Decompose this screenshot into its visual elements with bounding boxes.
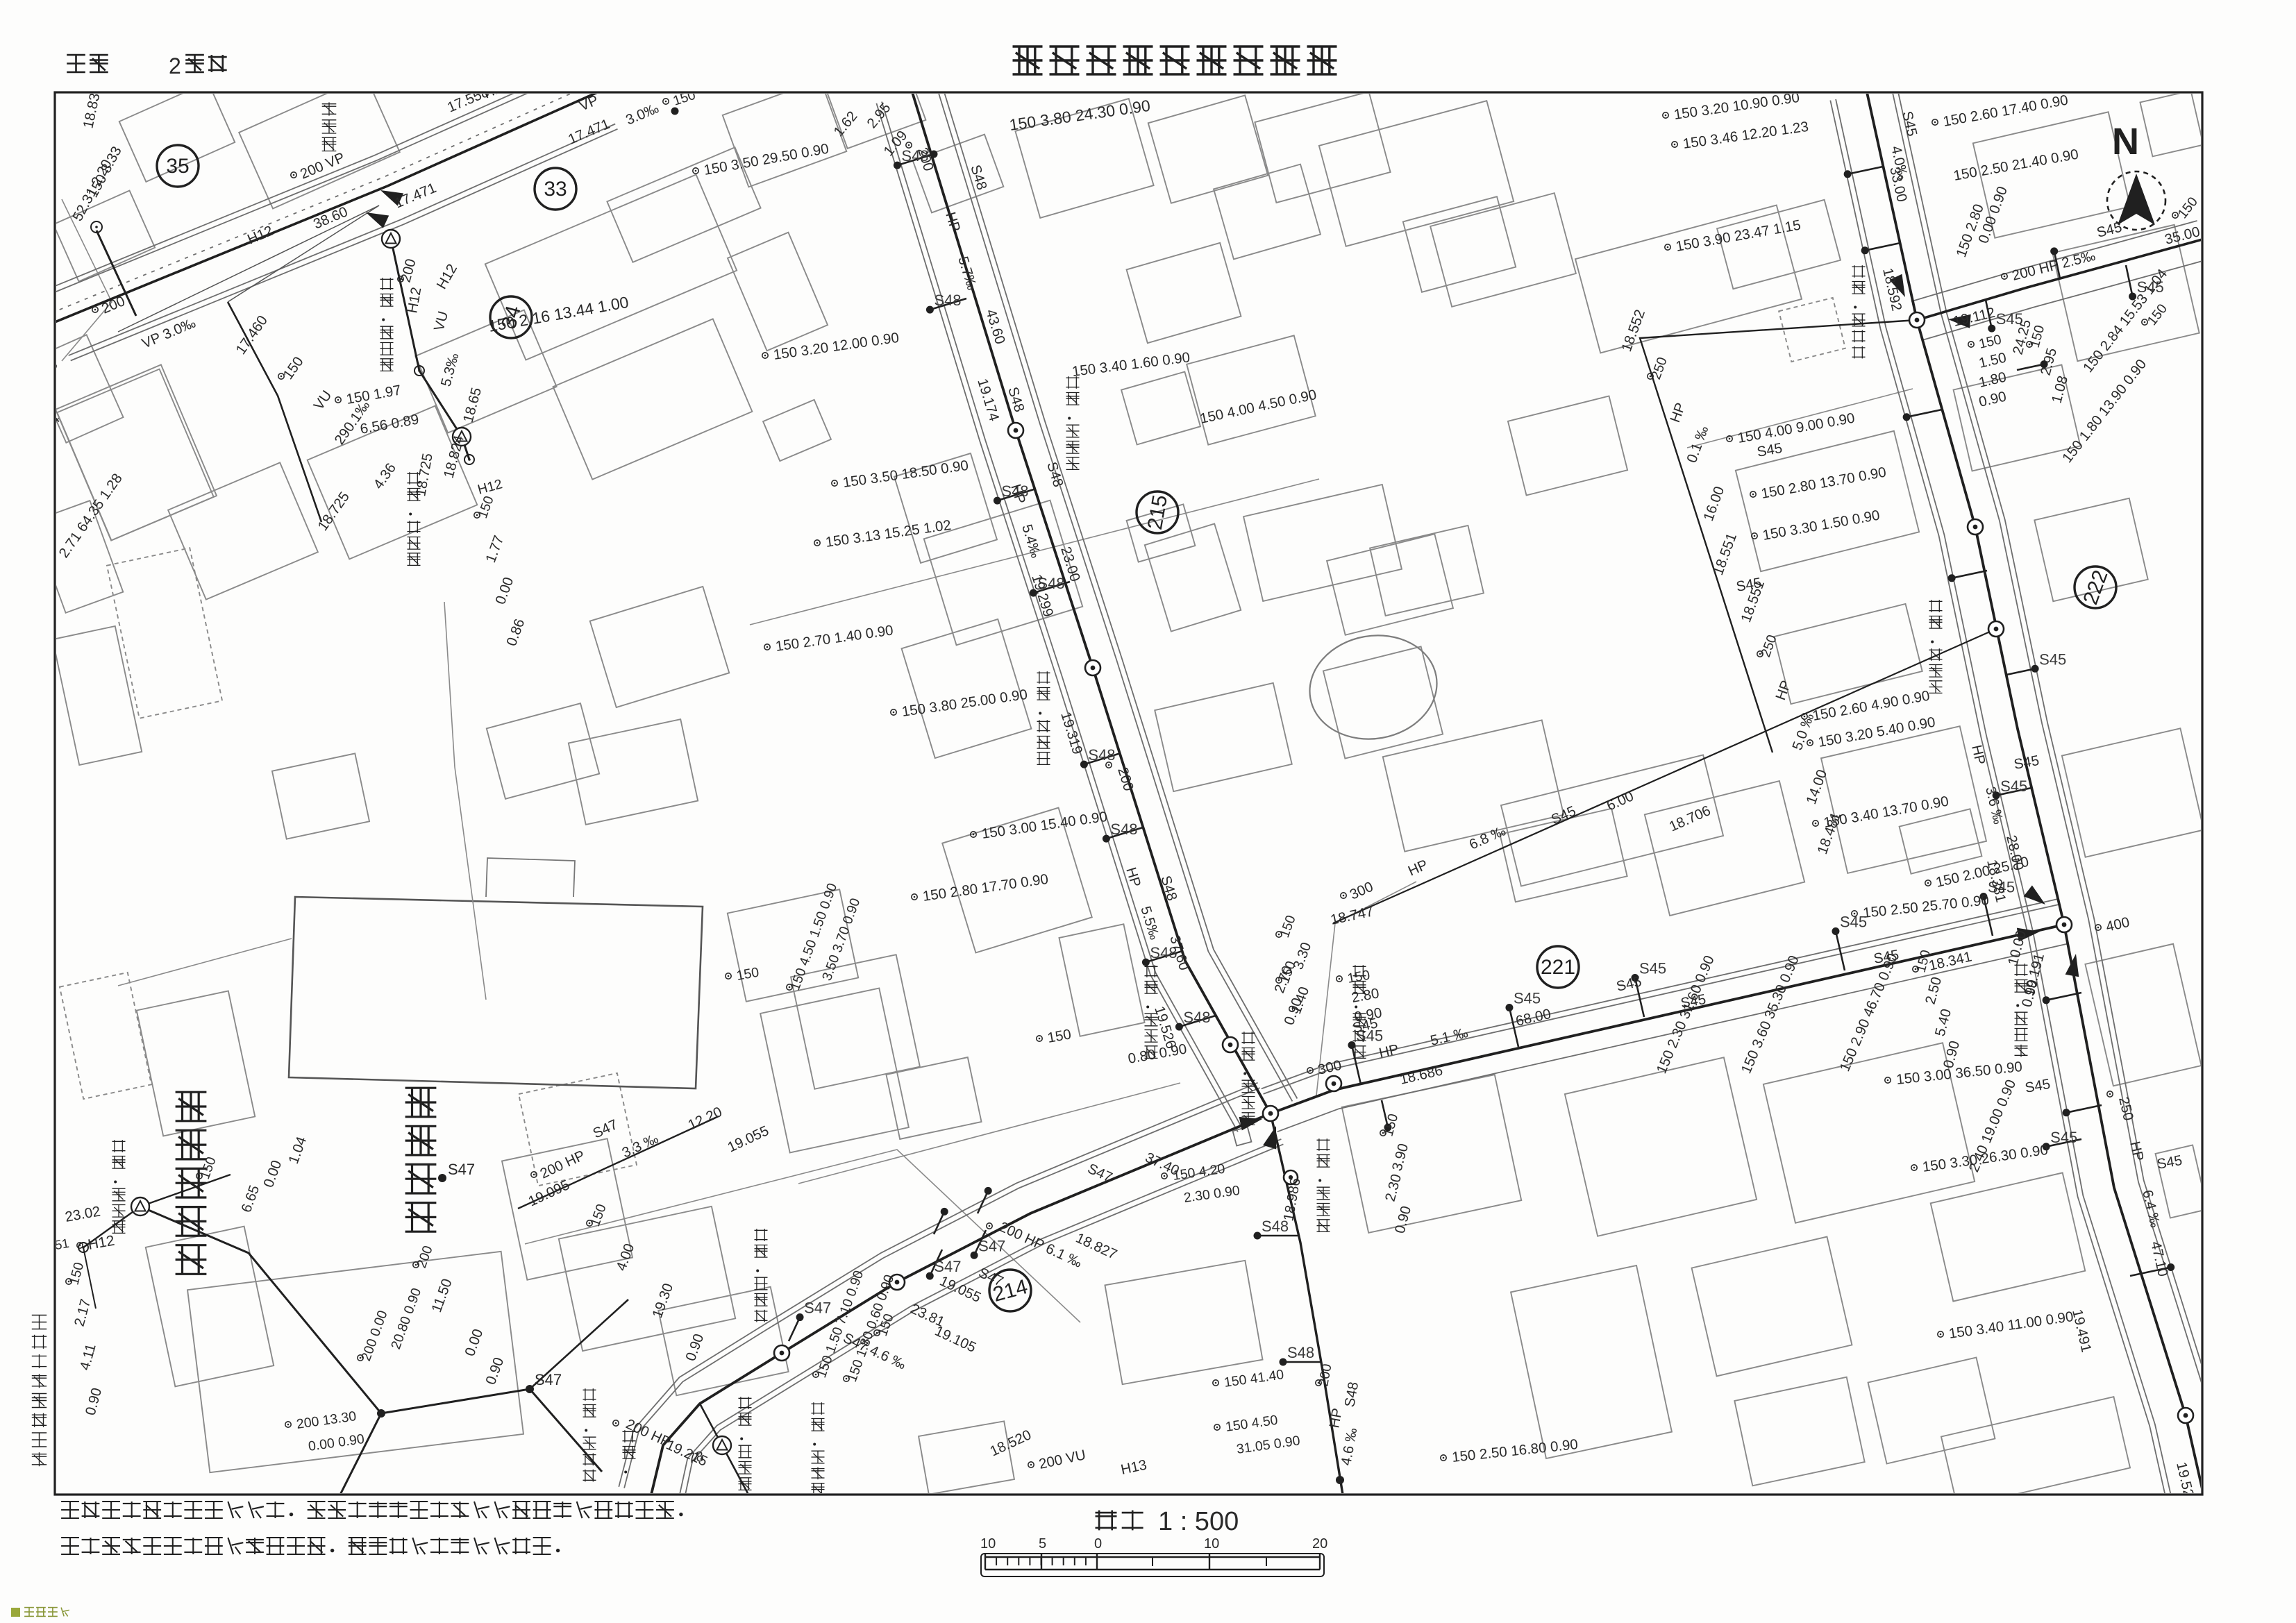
svg-text:N: N: [2112, 121, 2139, 162]
svg-text:0: 0: [1094, 1536, 1102, 1551]
svg-text:HP: HP: [1326, 1407, 1346, 1429]
svg-text:S47: S47: [535, 1371, 562, 1388]
svg-text:S48: S48: [1088, 746, 1115, 764]
svg-text:2: 2: [169, 53, 181, 78]
svg-text:S45: S45: [1639, 960, 1666, 977]
svg-text:S45: S45: [1514, 990, 1541, 1007]
svg-text:S48: S48: [1110, 821, 1137, 838]
svg-text:S47: S47: [448, 1161, 475, 1178]
svg-text:S47: S47: [978, 1237, 1005, 1254]
svg-text:10: 10: [1204, 1536, 1219, 1551]
svg-text:33: 33: [544, 178, 567, 201]
svg-text:20: 20: [1312, 1536, 1327, 1551]
svg-text:S48: S48: [934, 292, 961, 309]
svg-text:S48: S48: [1287, 1344, 1314, 1361]
svg-text:35: 35: [166, 155, 189, 178]
svg-text:S45: S45: [2039, 650, 2066, 668]
svg-text:221: 221: [1541, 956, 1575, 979]
svg-text:S45: S45: [2000, 777, 2027, 795]
svg-text:S48: S48: [1183, 1009, 1210, 1026]
svg-text:78: 78: [687, 1448, 705, 1467]
svg-text:1 : 500: 1 : 500: [1158, 1507, 1239, 1536]
svg-text:S45: S45: [2050, 1129, 2077, 1146]
svg-text:10: 10: [980, 1536, 996, 1551]
svg-text:5: 5: [1039, 1536, 1046, 1551]
svg-text:S47: S47: [934, 1258, 961, 1275]
svg-text:S47: S47: [804, 1300, 831, 1317]
